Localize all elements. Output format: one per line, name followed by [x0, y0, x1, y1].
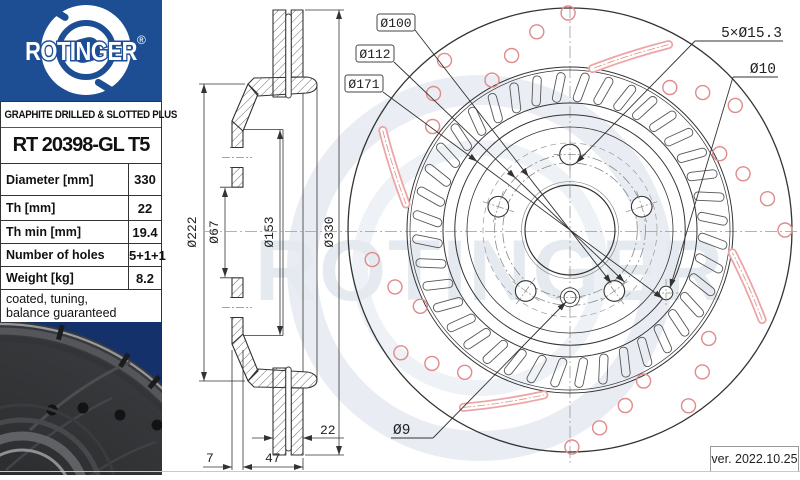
spec-label: Diameter [mm] — [1, 164, 129, 195]
table-row: Th min [mm] 19.4 — [1, 221, 161, 244]
spec-value: 330 — [129, 164, 161, 195]
vent-slot-top — [286, 14, 291, 98]
part-number: RT 20398-GL T5 — [13, 134, 150, 157]
spec-value: 8.2 — [129, 267, 161, 289]
version-box: ver. 2022.10.25 — [710, 446, 799, 472]
spec-value: 19.4 — [129, 221, 161, 243]
note-line: coated, tuning, — [6, 292, 161, 306]
dim-bore: Ø67 — [207, 220, 222, 243]
spec-label: Th [mm] — [1, 196, 129, 220]
spec-value: 22 — [129, 196, 161, 220]
brand-logo: ROTINGER ® — [0, 0, 162, 101]
dim-boxes: Ø100 Ø112 Ø171 — [345, 14, 415, 92]
dim-hat-wall: 7 — [206, 451, 214, 466]
table-row: Diameter [mm] 330 — [1, 164, 161, 196]
frame-bottom-line — [0, 471, 800, 472]
version-label: ver. 2022.10.25 — [711, 452, 797, 466]
product-line-band: GRAPHITE DRILLED & SLOTTED PLUS — [1, 102, 161, 128]
note-cell: coated, tuning, balance guaranteed — [1, 290, 161, 320]
registered-mark: ® — [137, 33, 146, 47]
label-d100: Ø100 — [380, 16, 411, 31]
spec-panel: GRAPHITE DRILLED & SLOTTED PLUS RT 20398… — [0, 101, 162, 323]
label-d10: Ø10 — [750, 62, 776, 78]
product-photo — [0, 322, 162, 475]
label-d112: Ø112 — [359, 47, 390, 62]
vent-slot-bottom — [286, 367, 291, 451]
dim-hat-outer: Ø222 — [185, 216, 200, 247]
watermark-logo: ROTINGER — [255, 90, 725, 446]
table-row: Number of holes 5+1+1 — [1, 244, 161, 267]
label-bolt-holes: 5×Ø15.3 — [721, 26, 782, 42]
spec-label: Th min [mm] — [1, 221, 129, 243]
brand-name: ROTINGER — [25, 37, 137, 66]
table-row: Th [mm] 22 — [1, 196, 161, 221]
table-row: Weight [kg] 8.2 — [1, 267, 161, 290]
spec-label: Number of holes — [1, 244, 129, 266]
dim-outer: Ø330 — [322, 216, 337, 247]
label-d9: Ø9 — [393, 423, 410, 439]
part-number-band: RT 20398-GL T5 — [1, 128, 161, 164]
dim-thickness: 22 — [320, 423, 336, 438]
product-line-label: GRAPHITE DRILLED & SLOTTED PLUS — [1, 109, 177, 121]
dim-recess: Ø153 — [262, 216, 277, 247]
dim-height: 47 — [265, 451, 281, 466]
label-d171: Ø171 — [348, 77, 379, 92]
spec-sheet-page: { "brand": {"name": "ROTINGER", "reg": "… — [0, 0, 800, 475]
spec-label: Weight [kg] — [1, 267, 129, 289]
brand-logo-block: ROTINGER ® — [0, 0, 162, 101]
spec-value: 5+1+1 — [129, 244, 166, 266]
note-line: balance guaranteed — [6, 306, 161, 320]
